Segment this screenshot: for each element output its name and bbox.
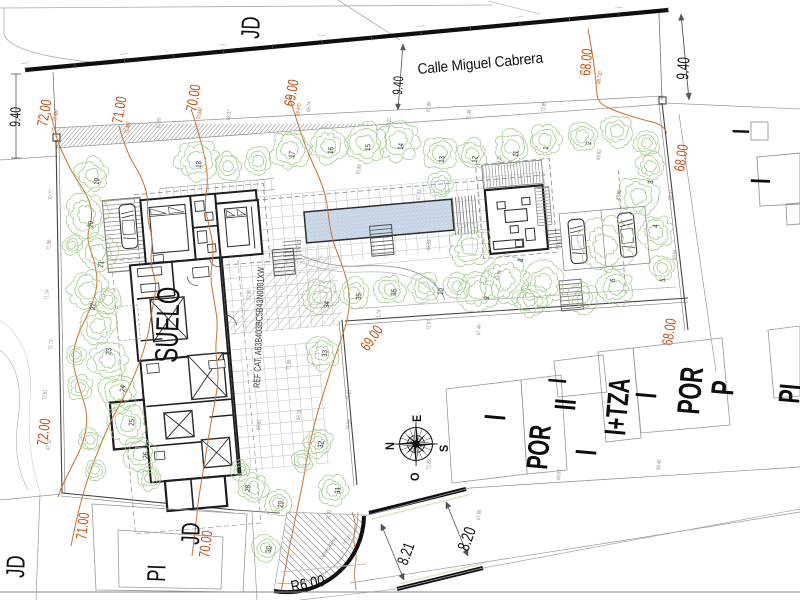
svg-text:71.58: 71.58 (285, 359, 293, 370)
svg-text:N: N (385, 442, 398, 450)
svg-text:12: 12 (471, 156, 479, 163)
svg-text:70.11: 70.11 (385, 117, 393, 128)
svg-text:70.55: 70.55 (345, 419, 353, 430)
svg-text:69.18: 69.18 (295, 409, 303, 420)
svg-text:68.59: 68.59 (425, 239, 433, 250)
svg-text:72.73: 72.73 (47, 339, 55, 350)
svg-text:67.10: 67.10 (45, 439, 53, 450)
svg-text:72.85: 72.85 (540, 101, 548, 112)
svg-text:72.29: 72.29 (425, 459, 433, 470)
svg-text:71.48: 71.48 (465, 109, 473, 120)
svg-text:24: 24 (119, 385, 127, 392)
svg-text:I: I (728, 129, 755, 134)
svg-text:67.00: 67.00 (155, 117, 163, 128)
svg-text:71.14: 71.14 (43, 289, 51, 300)
svg-text:33: 33 (321, 350, 329, 357)
svg-text:9.40: 9.40 (674, 57, 694, 81)
svg-text:9.40: 9.40 (389, 75, 407, 95)
svg-text:30: 30 (265, 546, 273, 553)
svg-text:PI: PI (773, 383, 800, 405)
svg-text:71.36: 71.36 (45, 239, 53, 250)
svg-text:69.40: 69.40 (655, 459, 663, 470)
svg-text:67.66: 67.66 (475, 509, 483, 520)
svg-text:29: 29 (277, 501, 285, 508)
svg-text:70.33: 70.33 (555, 239, 563, 250)
svg-text:19: 19 (93, 178, 101, 185)
svg-text:22: 22 (89, 303, 97, 310)
svg-text:23: 23 (105, 348, 113, 355)
svg-text:S: S (439, 444, 452, 452)
svg-text:69.96: 69.96 (495, 269, 503, 280)
svg-text:71.92: 71.92 (325, 509, 333, 520)
svg-text:I+TZA: I+TZA (599, 377, 637, 437)
svg-text:28: 28 (244, 485, 252, 492)
svg-text:35: 35 (355, 293, 363, 300)
svg-text:69.74: 69.74 (305, 101, 313, 112)
svg-text:36: 36 (390, 289, 398, 296)
svg-text:68.37: 68.37 (225, 109, 233, 120)
svg-text:68.69: 68.69 (615, 189, 623, 200)
svg-text:69.84: 69.84 (671, 249, 679, 260)
svg-text:9.40: 9.40 (6, 107, 24, 127)
svg-text:PI: PI (142, 564, 172, 582)
svg-text:67.88: 67.88 (425, 101, 433, 112)
svg-text:JD: JD (1, 555, 31, 578)
svg-text:68.03: 68.03 (555, 469, 563, 480)
svg-text:69.62: 69.62 (595, 149, 603, 160)
svg-text:32: 32 (317, 441, 325, 448)
svg-text:E: E (412, 414, 425, 422)
svg-text:68.00: 68.00 (576, 48, 596, 76)
svg-text:17: 17 (288, 151, 296, 158)
svg-text:16: 16 (327, 147, 335, 154)
svg-text:31: 31 (334, 487, 342, 494)
svg-text:72.95: 72.95 (245, 289, 253, 300)
svg-text:70.77: 70.77 (47, 189, 55, 200)
svg-text:67.32: 67.32 (415, 189, 423, 200)
svg-text:21: 21 (97, 261, 105, 268)
svg-text:72.51: 72.51 (41, 389, 49, 400)
svg-text:72.07: 72.07 (425, 319, 433, 330)
svg-text:26: 26 (142, 452, 150, 459)
svg-text:68.25: 68.25 (495, 155, 503, 166)
svg-text:71.70: 71.70 (375, 309, 383, 320)
svg-text:14: 14 (397, 143, 405, 150)
svg-text:13: 13 (438, 156, 446, 163)
svg-text:71.00: 71.00 (72, 512, 92, 541)
svg-text:67.22: 67.22 (295, 239, 303, 250)
svg-text:JD: JD (236, 16, 266, 39)
svg-text:SUELO: SUELO (148, 286, 187, 363)
svg-text:11: 11 (512, 150, 520, 157)
svg-text:20: 20 (87, 221, 95, 228)
svg-text:68.81: 68.81 (255, 419, 263, 430)
svg-text:15: 15 (364, 144, 372, 151)
svg-text:70.21: 70.21 (345, 389, 353, 400)
svg-text:34: 34 (323, 301, 331, 308)
svg-text:O: O (410, 472, 423, 481)
svg-text:I: I (745, 178, 777, 184)
svg-text:67.44: 67.44 (475, 324, 483, 335)
svg-text:68.47: 68.47 (667, 189, 675, 200)
svg-text:70.99: 70.99 (355, 164, 363, 175)
svg-text:POR: POR (521, 424, 557, 471)
svg-text:25: 25 (128, 419, 136, 426)
svg-text:JD: JD (176, 522, 206, 545)
svg-text:18: 18 (195, 161, 203, 168)
